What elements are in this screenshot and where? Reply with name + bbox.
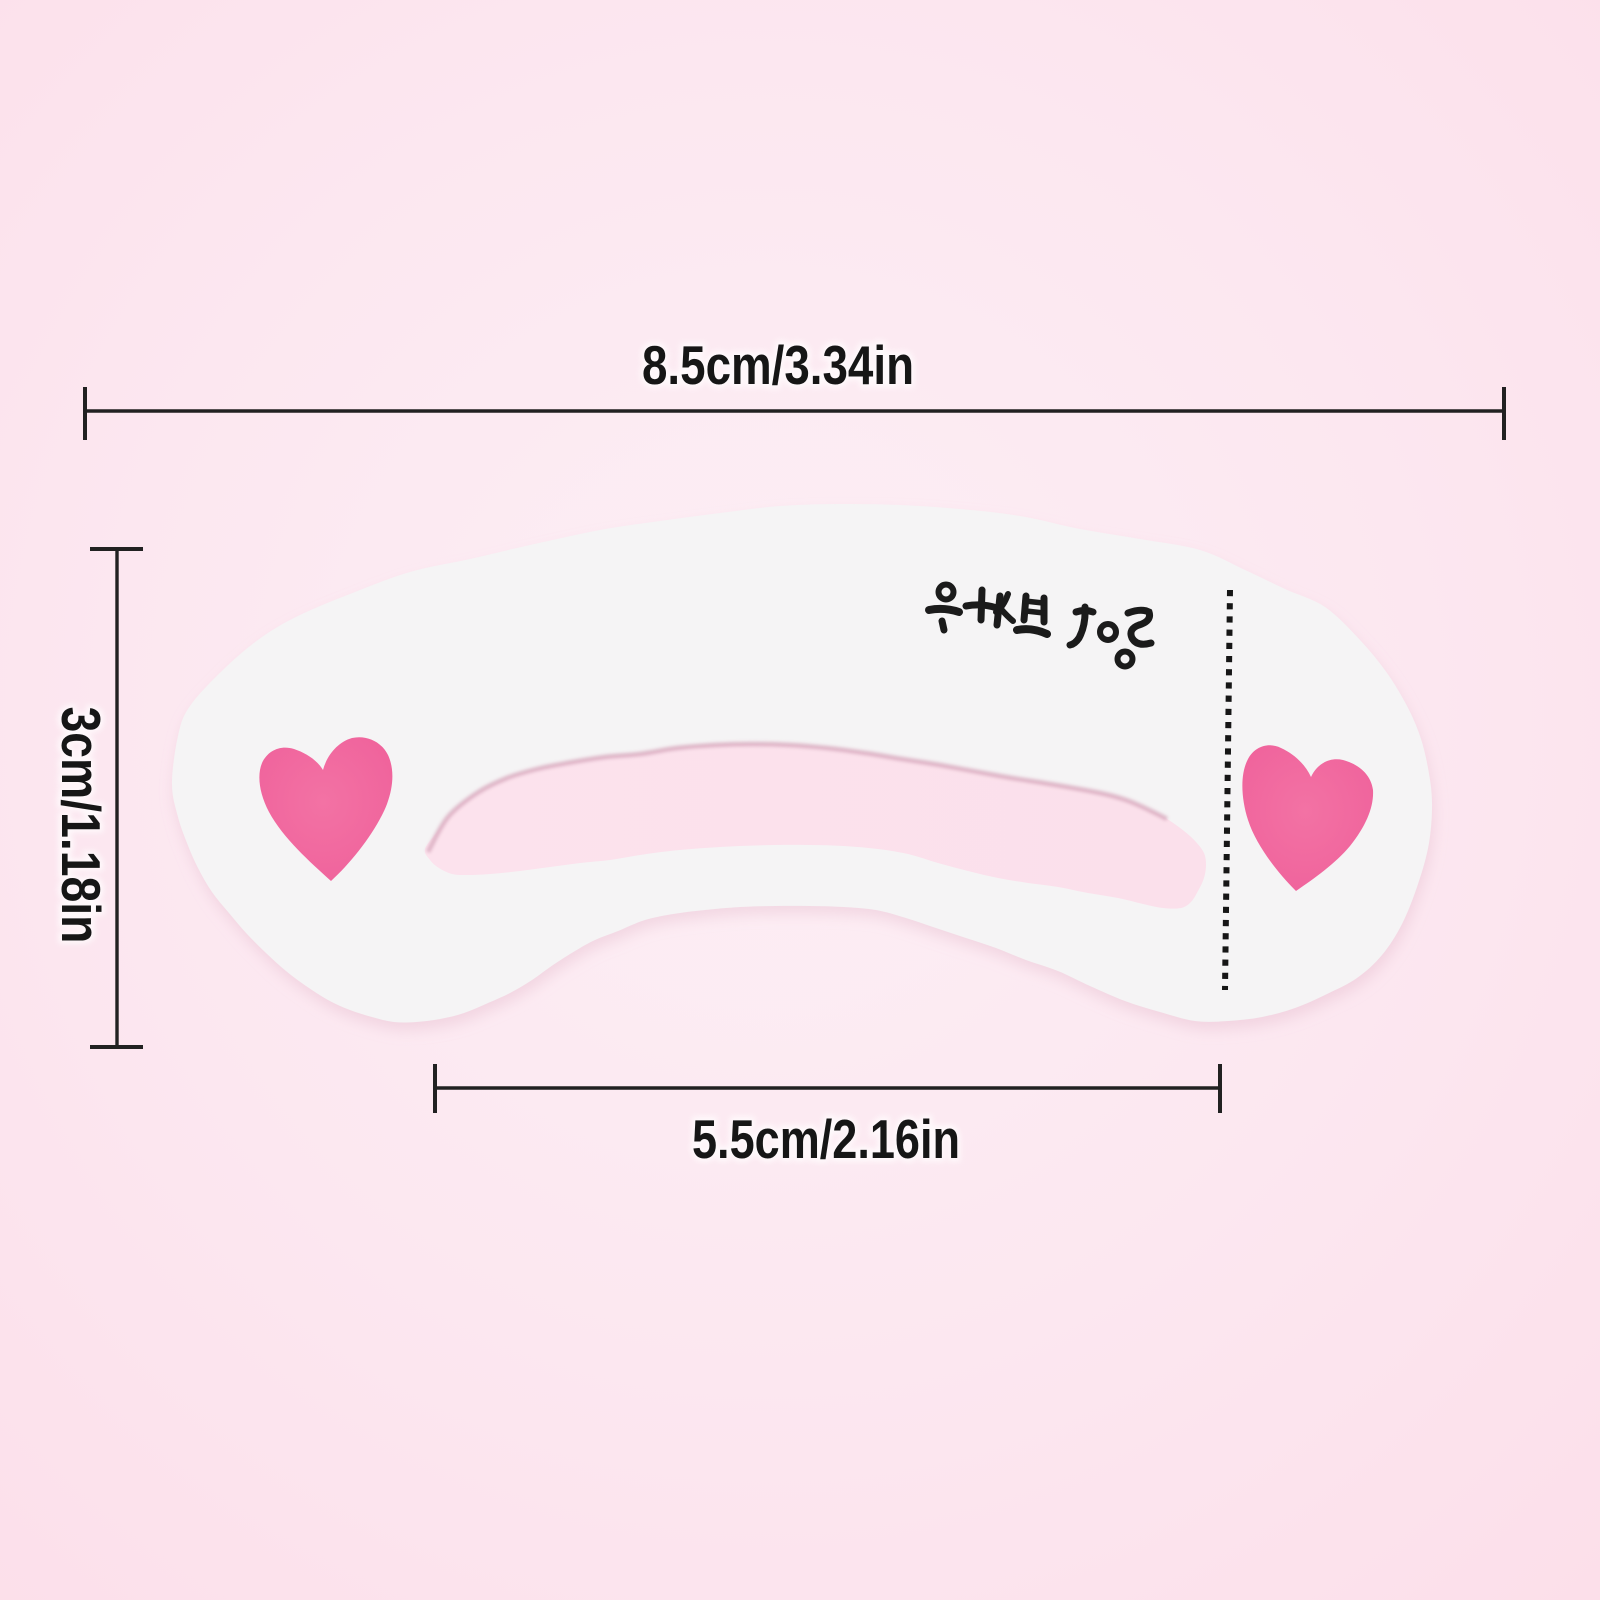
svg-text:8.5cm/3.34in: 8.5cm/3.34in [642, 334, 914, 396]
svg-text:3cm/1.18in: 3cm/1.18in [50, 707, 112, 944]
svg-text:5.5cm/2.16in: 5.5cm/2.16in [692, 1108, 960, 1170]
